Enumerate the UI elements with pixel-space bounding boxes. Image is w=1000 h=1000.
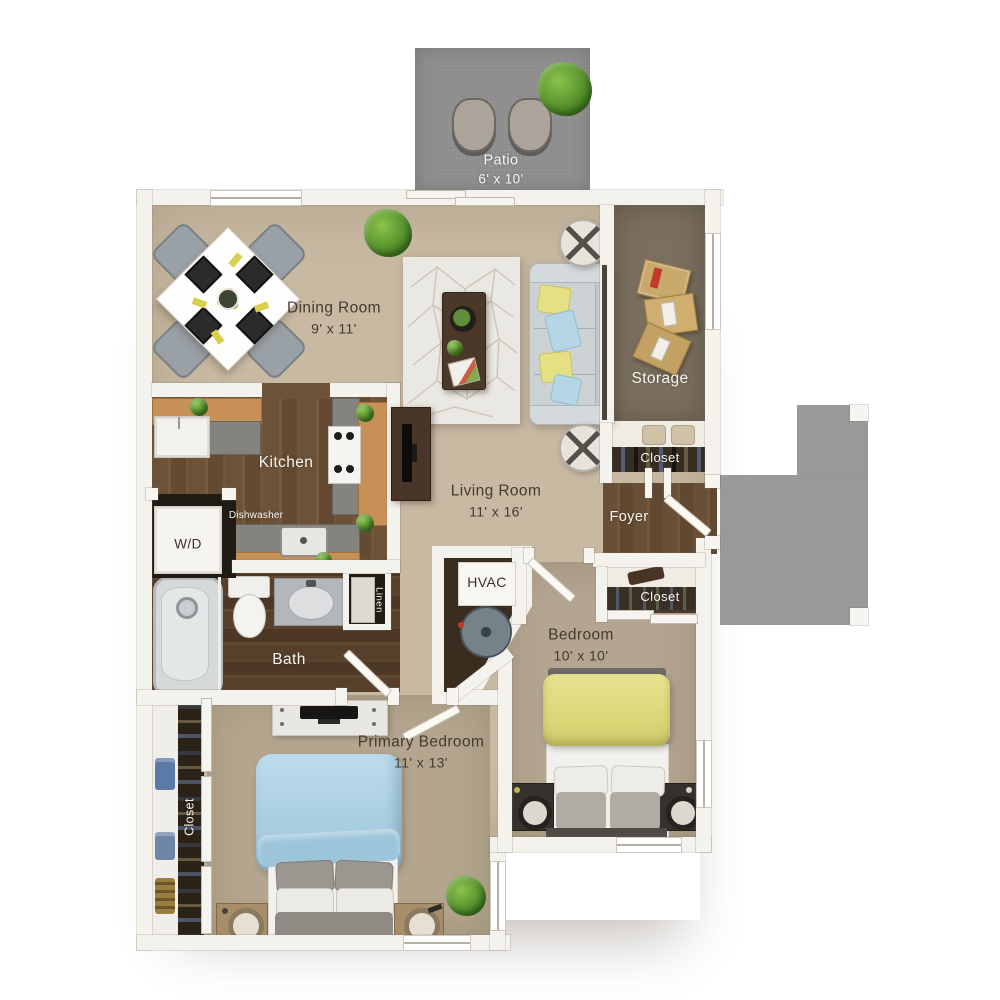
living-room-name: Living Room <box>451 480 542 502</box>
table-centerpiece <box>219 290 237 308</box>
wall-foyer-bottom <box>593 553 705 567</box>
refrigerator-door-line <box>178 417 180 429</box>
door-jamb <box>705 536 720 549</box>
kitchen-plant <box>356 404 374 422</box>
wall-foyer-closet-left <box>596 567 607 622</box>
sink-faucet <box>300 537 307 544</box>
coat-closet-label: Closet <box>640 449 679 467</box>
bed-accent-pillow <box>610 792 660 830</box>
lamp <box>518 796 552 830</box>
primary-closet-sliding-door <box>201 866 212 934</box>
hvac-name: HVAC <box>467 573 506 593</box>
foyer-closet-sliding-door <box>607 610 654 620</box>
nightstand-decor <box>222 908 228 914</box>
bath-sink <box>288 586 334 620</box>
coat-closet-basket <box>671 425 695 445</box>
patio-chair <box>452 98 496 152</box>
primary-bedroom-label: Primary Bedroom 11' x 13' <box>358 731 485 772</box>
dresser-tv-stand <box>318 719 340 724</box>
storage-wall-trim <box>602 265 607 420</box>
patio-plant <box>538 62 592 116</box>
sofa-arm <box>530 405 610 424</box>
coat-closet-door-panel <box>645 468 652 498</box>
bedroom-window-bottom <box>616 837 682 853</box>
linen-label: Linen <box>372 587 385 613</box>
kitchen-name: Kitchen <box>259 452 314 474</box>
living-room-dims: 11' x 16' <box>451 502 542 522</box>
coat-closet-door-panel <box>664 468 671 498</box>
coat-closet-basket <box>642 425 666 445</box>
door-jamb <box>146 488 158 500</box>
dresser-tv <box>300 706 358 719</box>
wall-bedroom-left <box>498 655 512 852</box>
coat-closet-name: Closet <box>640 449 679 467</box>
bed-accent-pillow <box>556 792 606 830</box>
bathtub-drain <box>176 597 198 619</box>
primary-bedroom-name: Primary Bedroom <box>358 731 485 753</box>
bedroom-dims: 10' x 10' <box>548 646 614 666</box>
foyer-closet-sliding-door <box>650 614 698 624</box>
closet-folded-item <box>155 832 175 860</box>
floor-plant <box>364 209 412 257</box>
dresser-knob <box>372 708 376 712</box>
storage-window <box>705 233 721 330</box>
wall-left <box>137 190 152 950</box>
wall-coat-closet-left <box>600 423 612 483</box>
door-jamb <box>584 548 594 563</box>
primary-window-right <box>490 861 506 931</box>
primary-window-bottom <box>403 935 471 951</box>
dresser-knob <box>280 722 284 726</box>
closet-folded-item <box>155 758 175 790</box>
coffee-table-bowl <box>450 306 476 332</box>
walkway-post <box>850 608 868 625</box>
water-heater-valve <box>458 622 464 628</box>
nightstand-decor <box>686 787 692 793</box>
wall-dining-kitchen-a <box>152 383 262 397</box>
door-jamb <box>336 688 347 705</box>
sofa-pillow-blue <box>549 373 582 406</box>
bedroom-label: Bedroom 10' x 10' <box>548 624 614 665</box>
tv-stand <box>412 444 417 462</box>
patio-sliding-door <box>455 197 515 206</box>
primary-bedroom-plant <box>446 876 486 916</box>
patio-dims: 6' x 10' <box>478 171 523 190</box>
floor-plan: Patio 6' x 10' <box>0 0 1000 1000</box>
door-jamb <box>705 475 720 488</box>
foyer-name: Foyer <box>609 507 648 527</box>
foyer-closet-name: Closet <box>640 588 679 606</box>
bathtub <box>153 577 223 696</box>
dining-room-name: Dining Room <box>287 297 381 319</box>
patio-label: Patio 6' x 10' <box>478 150 523 189</box>
burner <box>334 465 342 473</box>
dresser-knob <box>372 722 376 726</box>
foyer-label: Foyer <box>609 507 648 527</box>
bed-yellow-blanket <box>543 674 670 746</box>
storage-name: Storage <box>631 368 688 390</box>
closet-folded-item <box>155 878 175 914</box>
coffee-table-plant <box>447 340 463 356</box>
sofa-arm <box>530 264 610 283</box>
linen-text: Linen <box>372 587 385 613</box>
foyer-closet-label: Closet <box>640 588 679 606</box>
hvac-label: HVAC <box>467 573 506 593</box>
toilet-bowl <box>233 594 266 638</box>
dining-room-dims: 9' x 11' <box>287 319 381 339</box>
walkway-post <box>850 405 868 421</box>
bedroom-window-right <box>696 740 712 808</box>
wall-bath-bottom <box>137 690 345 705</box>
kitchen-plant <box>356 514 374 532</box>
kitchen-counter-top <box>204 421 261 455</box>
entry-walkway <box>720 475 868 625</box>
bath-label: Bath <box>272 649 306 671</box>
bedroom-name: Bedroom <box>548 624 614 646</box>
dresser-knob <box>280 708 284 712</box>
tv <box>402 424 412 482</box>
kitchen-entry-floor <box>262 383 330 399</box>
refrigerator <box>154 416 210 458</box>
water-heater <box>462 608 510 656</box>
burner <box>346 432 354 440</box>
bath-faucet <box>306 580 316 587</box>
dishwasher-text: Dishwasher <box>229 509 283 523</box>
washer-dryer-text: W/D <box>174 536 201 555</box>
door-jamb <box>447 688 458 705</box>
wall-kitchen-bath <box>232 560 400 573</box>
kitchen-plant <box>190 398 208 416</box>
burner <box>346 465 354 473</box>
stove <box>328 426 361 484</box>
dining-room-label: Dining Room 9' x 11' <box>287 297 381 338</box>
kitchen-label: Kitchen <box>259 452 314 474</box>
primary-bedroom-dims: 11' x 13' <box>358 753 485 773</box>
nightstand-decor <box>514 787 520 793</box>
storage-label: Storage <box>631 368 688 390</box>
washer-dryer-label: W/D <box>174 536 201 555</box>
primary-closet-sliding-door <box>201 776 212 862</box>
patio-name: Patio <box>478 150 523 170</box>
primary-closet-sliding-door <box>201 698 212 772</box>
burner <box>334 432 342 440</box>
lamp <box>666 796 700 830</box>
dining-window <box>210 190 302 206</box>
primary-closet-name: Closet <box>181 798 199 836</box>
dishwasher-label: Dishwasher <box>229 509 283 523</box>
shower-curtain <box>218 577 221 690</box>
primary-closet-label: Closet <box>181 798 199 836</box>
door-jamb <box>222 488 236 500</box>
bath-name: Bath <box>272 649 306 671</box>
living-room-label: Living Room 11' x 16' <box>451 480 542 521</box>
